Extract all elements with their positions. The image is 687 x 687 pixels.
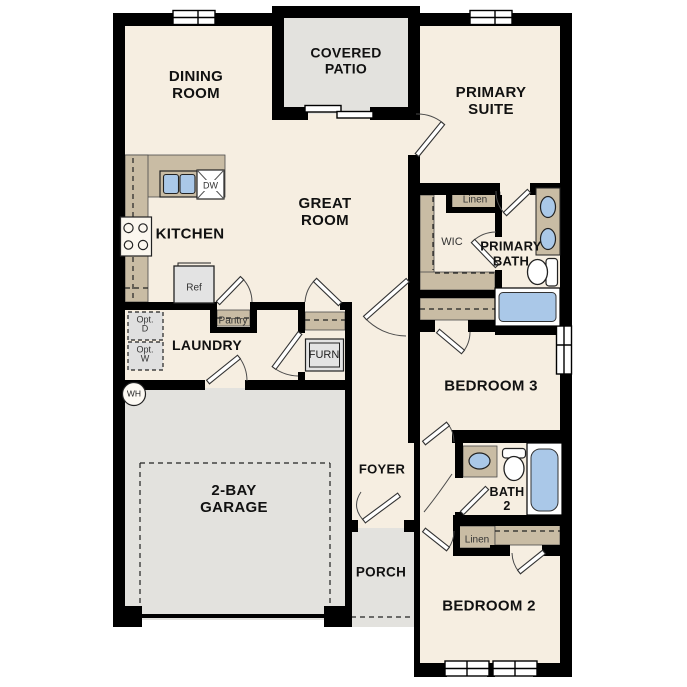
primary-tub-icon <box>495 288 560 326</box>
primary-bath-label: PRIMARY BATH <box>480 239 542 268</box>
wall <box>414 183 500 195</box>
dining-room-label: DINING ROOM <box>169 69 223 103</box>
window-bedroom2-right <box>493 661 537 676</box>
linen-primary-label: Linen <box>463 194 487 205</box>
wic-shelf-bottom <box>420 272 495 290</box>
pantry-label: Pantry <box>219 315 248 326</box>
patio-wall <box>408 6 420 120</box>
wall <box>533 663 572 677</box>
wall <box>495 195 502 237</box>
floor-plan-graphic <box>0 0 687 687</box>
furnace-label: FURN <box>309 349 340 361</box>
bath2-sink-icon <box>469 453 490 469</box>
laundry-label: LAUNDRY <box>172 338 242 354</box>
bath2-toilet-icon <box>503 449 526 481</box>
wall <box>495 326 560 335</box>
patio-wall <box>272 107 308 120</box>
garage-label: 2-BAY GARAGE <box>200 483 268 517</box>
wall <box>257 302 305 310</box>
wall <box>345 520 358 532</box>
wall <box>408 320 435 332</box>
window-primary-suite <box>470 11 512 25</box>
bedroom3-label: BEDROOM 3 <box>444 379 538 396</box>
linen-bath2-label: Linen <box>465 534 489 545</box>
floor-plan-page: DINING ROOM COVERED PATIO PRIMARY SUITE … <box>0 0 687 687</box>
wall <box>345 388 352 627</box>
wall <box>455 443 463 478</box>
wall <box>560 13 572 326</box>
range-icon <box>121 217 152 256</box>
wic-label: WIC <box>441 236 462 248</box>
wall <box>468 320 495 332</box>
wall <box>452 430 572 443</box>
water-heater-label: WH <box>127 390 141 399</box>
primary-suite-label: PRIMARY SUITE <box>456 85 527 119</box>
covered-patio-label: COVERED PATIO <box>310 45 381 76</box>
bath2-label: BATH 2 <box>490 485 525 513</box>
opt-washer-label: Opt. W <box>136 346 153 365</box>
wall <box>542 545 572 556</box>
wall <box>408 290 502 298</box>
great-room-label: GREAT ROOM <box>299 196 352 230</box>
linen-wall <box>446 207 502 213</box>
wall <box>345 302 352 388</box>
opt-dryer-label: Opt. D <box>136 316 153 335</box>
wall <box>414 663 447 677</box>
refrigerator-label: Ref <box>186 282 202 293</box>
bedroom2-label: BEDROOM 2 <box>442 599 536 616</box>
wall <box>298 302 305 333</box>
window-dining <box>173 11 215 25</box>
bed2-closet-shelf <box>495 524 560 545</box>
dishwasher-label: DW <box>203 181 218 190</box>
furnace-shelf <box>305 312 345 330</box>
wall <box>113 606 142 627</box>
wall <box>113 13 125 627</box>
porch-label: PORCH <box>356 564 406 579</box>
foyer-label: FOYER <box>359 463 405 478</box>
wall <box>490 545 510 556</box>
kitchen-sink-icon <box>160 171 198 197</box>
patio-wall <box>272 6 420 18</box>
patio-wall <box>272 6 284 120</box>
garage-door-header <box>138 614 328 618</box>
wall <box>414 443 420 663</box>
wall <box>210 327 257 333</box>
wall <box>453 515 572 526</box>
bath2-tub-icon <box>527 443 562 515</box>
patio-wall <box>370 107 420 120</box>
window-bedroom2-left <box>445 661 489 676</box>
window-bedroom3 <box>557 326 572 374</box>
wall <box>245 380 352 390</box>
kitchen-label: KITCHEN <box>156 227 225 244</box>
wall <box>414 430 420 443</box>
wall <box>408 155 420 443</box>
